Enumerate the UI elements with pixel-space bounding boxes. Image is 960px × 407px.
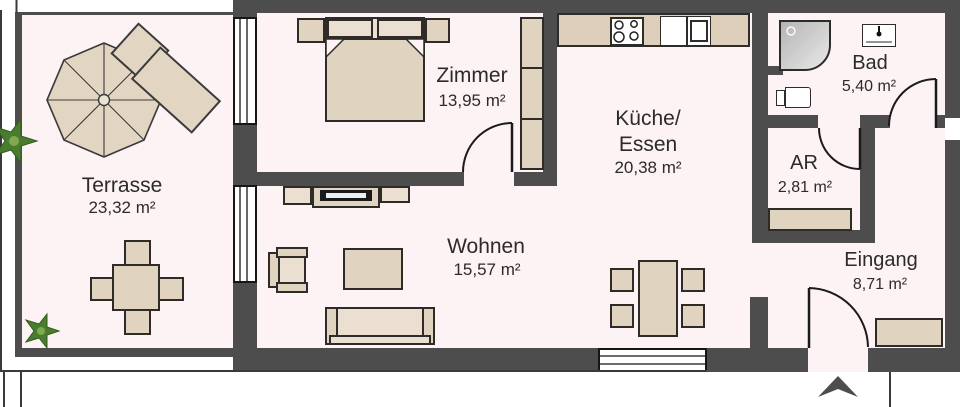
entrance-arrow-icon xyxy=(818,376,858,397)
room-area-terrasse: 23,32 m² xyxy=(88,199,155,217)
plant-icon xyxy=(0,119,37,163)
room-label-ar: AR xyxy=(790,153,818,174)
room-label-essen: Essen xyxy=(619,134,677,156)
room-label-bad: Bad xyxy=(852,53,888,74)
plant-icon xyxy=(26,314,59,348)
room-area-bad: 5,40 m² xyxy=(842,79,896,96)
floor-plan: Terrasse 23,32 m² Zimmer 13,95 m² Küche/… xyxy=(0,0,960,407)
tap-icon xyxy=(866,26,892,42)
entrance-door xyxy=(809,288,868,348)
room-label-zimmer: Zimmer xyxy=(436,65,507,87)
room-label-wohnen: Wohnen xyxy=(447,236,525,258)
bedroom-door xyxy=(463,123,512,172)
door-swings xyxy=(463,79,936,348)
room-label-eingang: Eingang xyxy=(844,250,917,271)
room-area-wohnen: 15,57 m² xyxy=(453,261,520,279)
room-area-eingang: 8,71 m² xyxy=(853,277,907,294)
room-label-kueche: Küche/ xyxy=(615,108,680,130)
storage-door xyxy=(819,128,860,169)
room-area-ar: 2,81 m² xyxy=(778,180,832,197)
shower-drain xyxy=(787,27,795,35)
room-area-kueche: 20,38 m² xyxy=(614,159,681,177)
room-label-terrasse: Terrasse xyxy=(82,175,163,197)
room-area-zimmer: 13,95 m² xyxy=(438,92,505,110)
bed-fold xyxy=(326,39,424,57)
cooktop-burners xyxy=(614,21,638,42)
